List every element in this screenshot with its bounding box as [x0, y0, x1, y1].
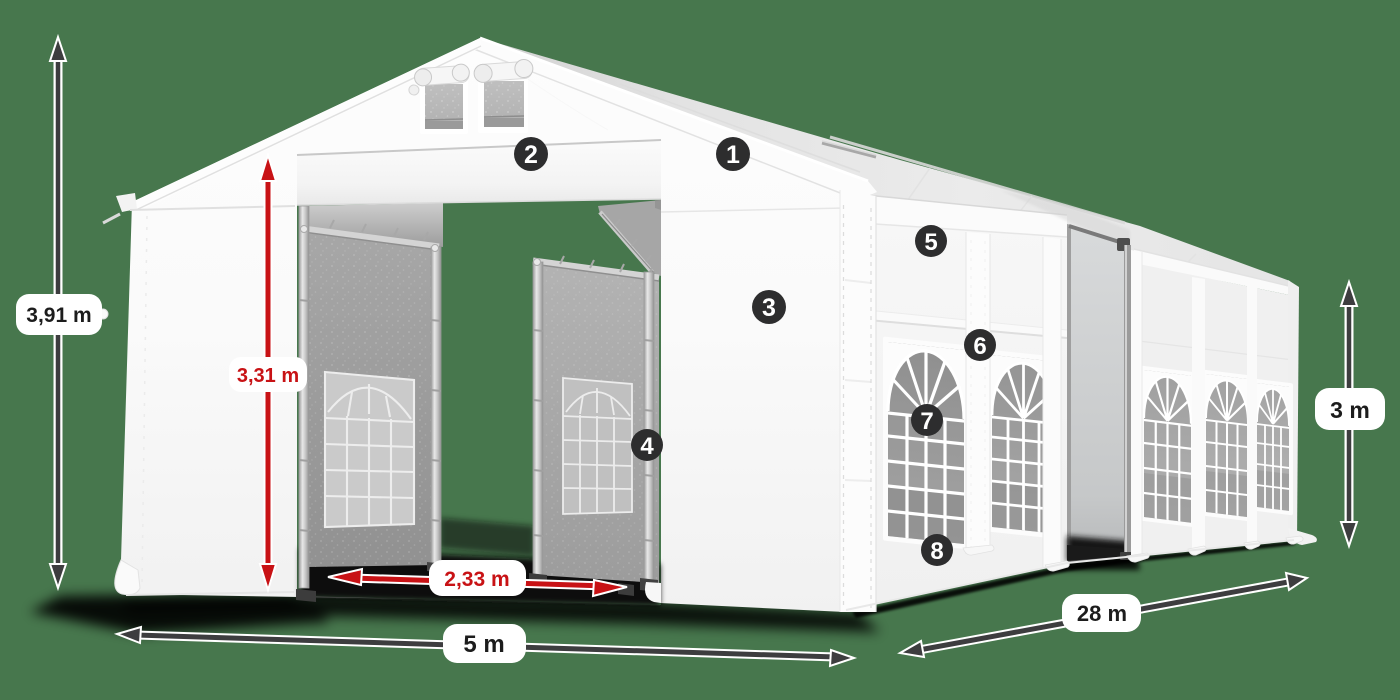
svg-text:5 m: 5 m: [463, 631, 504, 658]
svg-text:2: 2: [524, 141, 538, 169]
svg-text:3,31 m: 3,31 m: [237, 365, 299, 387]
svg-text:3 m: 3 m: [1330, 397, 1370, 423]
svg-text:28 m: 28 m: [1077, 601, 1127, 626]
svg-text:7: 7: [920, 408, 933, 435]
svg-text:5: 5: [924, 229, 937, 256]
svg-text:3: 3: [762, 294, 776, 322]
svg-text:2,33 m: 2,33 m: [444, 568, 509, 591]
svg-text:6: 6: [973, 333, 986, 360]
svg-text:3,91 m: 3,91 m: [26, 304, 91, 327]
svg-text:8: 8: [930, 538, 943, 565]
svg-text:1: 1: [726, 141, 740, 169]
svg-text:4: 4: [640, 433, 654, 460]
